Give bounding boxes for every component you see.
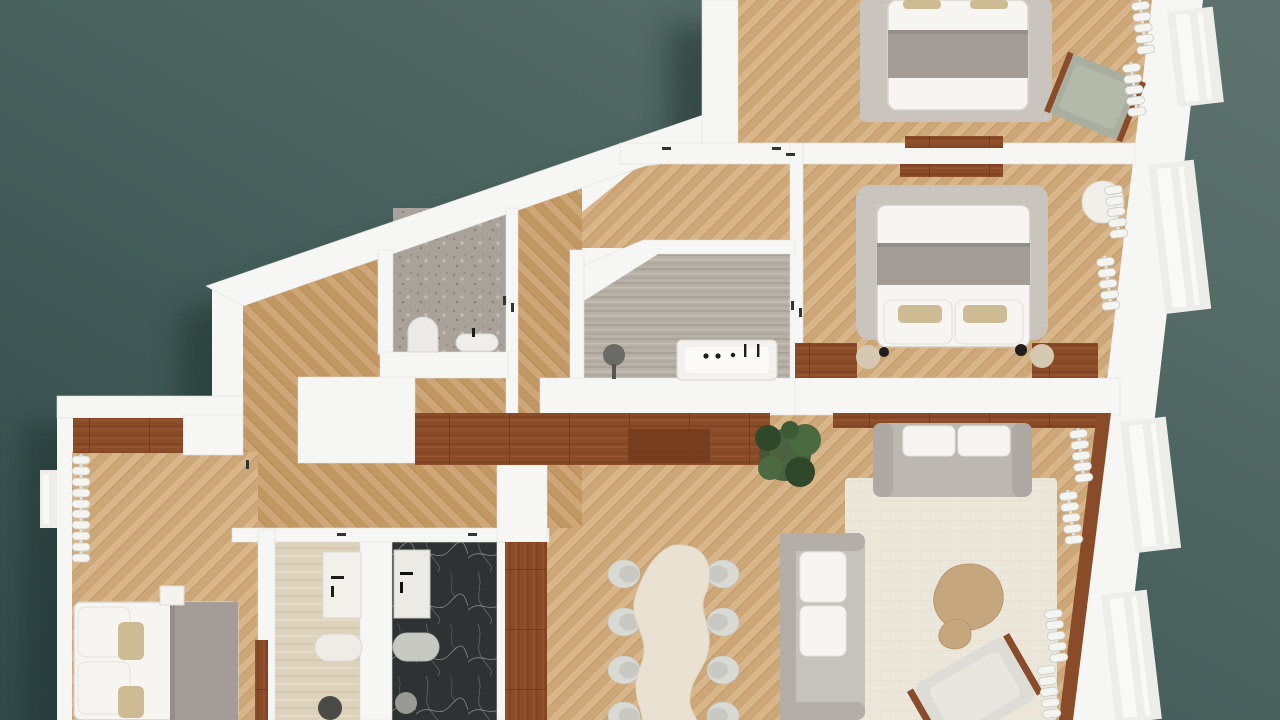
capsule-bathtub <box>393 633 439 661</box>
sofa-left <box>780 533 865 720</box>
accent-pillow <box>118 622 144 660</box>
accent-pillow <box>898 305 942 323</box>
dining-chair <box>608 656 640 684</box>
hall-console-recess <box>628 429 710 463</box>
bedroom-divider-wall <box>620 143 1135 164</box>
bedroom-3 <box>74 586 238 720</box>
bedroom-2-headboard <box>900 164 1003 177</box>
dining-west-wall <box>497 463 547 542</box>
powder-bottom-wall <box>380 352 508 378</box>
double-bed <box>888 0 1028 110</box>
bedroom-1-headboard <box>905 136 1003 148</box>
lamp-left <box>879 347 889 357</box>
toilet <box>408 317 438 352</box>
window-box-left <box>40 470 57 528</box>
bathroom-divider-wall <box>360 542 392 720</box>
fringe-pillow <box>800 606 846 656</box>
white-nightstand <box>160 586 184 605</box>
powder-right-wall <box>506 208 518 420</box>
accent-pillow <box>963 305 1007 323</box>
nightstand-right <box>1030 344 1054 368</box>
nightstand-left <box>856 345 880 369</box>
lamp-right <box>1015 344 1027 356</box>
left-wing-closet-wall <box>183 415 243 455</box>
pillow <box>903 0 941 9</box>
tap <box>472 328 475 337</box>
toilet <box>318 696 342 720</box>
living-north-wall <box>795 378 1120 415</box>
floor-plan-canvas <box>0 0 1280 720</box>
toilet <box>395 692 417 714</box>
bedroom-3-door-panel <box>255 640 268 720</box>
bathroom-left-wall <box>570 250 584 382</box>
dining-chair <box>707 656 739 684</box>
pillow <box>970 0 1008 9</box>
fringe-pillow <box>958 426 1010 456</box>
dining-chair <box>707 608 739 636</box>
bathroom-south-wall <box>540 378 797 415</box>
bedroom-3-wardrobe <box>73 418 183 453</box>
wall-sink <box>456 334 498 351</box>
kidney-coffee-table <box>934 564 1004 630</box>
vanity <box>394 550 430 618</box>
double-bed <box>877 205 1030 347</box>
fringe-pillow <box>800 552 846 602</box>
capsule-bathtub <box>315 634 362 661</box>
bedroom-2-bench-left <box>795 343 857 378</box>
basin-stool <box>603 344 625 366</box>
sofa-top <box>873 423 1032 497</box>
structural-core <box>298 377 415 463</box>
dining-chair <box>608 560 640 588</box>
powder-left-wall <box>378 250 393 354</box>
fringe-pillow <box>903 426 955 456</box>
dining-chair <box>707 560 739 588</box>
hall-console <box>415 413 770 465</box>
dining-wardrobe <box>505 542 547 720</box>
potted-plant <box>755 421 821 487</box>
bedroom-1-left-wall <box>702 0 738 160</box>
accent-pillow <box>118 686 144 718</box>
vanity <box>323 552 361 618</box>
double-bed <box>74 602 238 720</box>
floor-plan-stage <box>0 0 1280 720</box>
